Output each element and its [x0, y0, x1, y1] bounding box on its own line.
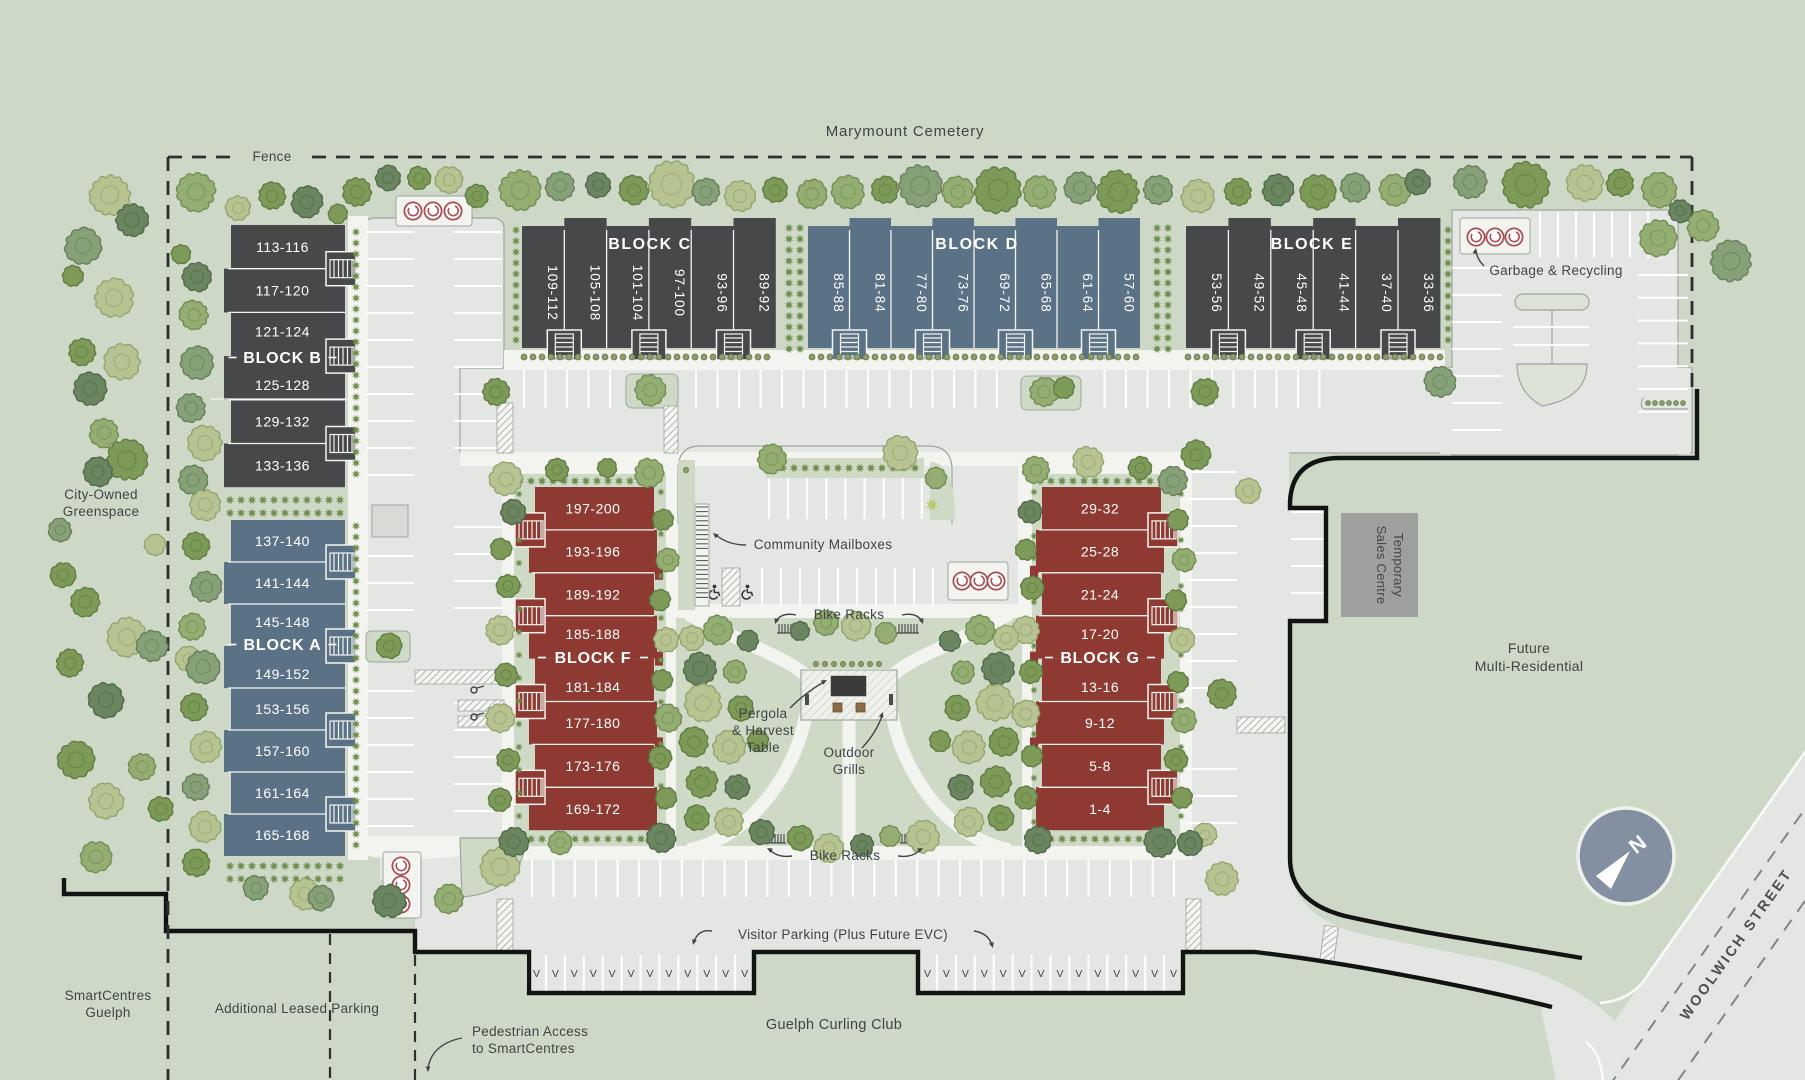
svg-text:Community Mailboxes: Community Mailboxes: [754, 537, 893, 552]
svg-text:141-144: 141-144: [255, 575, 310, 591]
svg-text:9-12: 9-12: [1085, 715, 1115, 731]
svg-text:Sales Centre: Sales Centre: [1374, 526, 1389, 605]
svg-text:V: V: [741, 968, 748, 980]
svg-text:Garbage & Recycling: Garbage & Recycling: [1489, 263, 1622, 278]
svg-text:V: V: [609, 968, 616, 980]
svg-text:V: V: [1170, 968, 1177, 980]
svg-text:101-104: 101-104: [630, 265, 645, 322]
svg-text:BLOCK A: BLOCK A: [244, 637, 322, 654]
svg-text:Fence: Fence: [252, 149, 291, 164]
svg-text:81-84: 81-84: [872, 273, 887, 313]
svg-text:133-136: 133-136: [255, 457, 310, 473]
svg-text:BLOCK F: BLOCK F: [555, 650, 632, 667]
svg-text:V: V: [646, 968, 653, 980]
svg-text:109-112: 109-112: [545, 265, 560, 321]
svg-text:185-188: 185-188: [566, 626, 621, 642]
svg-text:113-116: 113-116: [256, 239, 309, 255]
svg-text:53-56: 53-56: [1209, 273, 1224, 313]
svg-text:93-96: 93-96: [714, 273, 729, 313]
svg-text:189-192: 189-192: [566, 586, 621, 602]
svg-text:45-48: 45-48: [1294, 273, 1309, 313]
svg-text:Greenspace: Greenspace: [63, 504, 140, 519]
svg-text:5-8: 5-8: [1089, 758, 1111, 774]
svg-text:V: V: [533, 968, 540, 980]
svg-text:Multi-Residential: Multi-Residential: [1475, 658, 1584, 674]
svg-text:165-168: 165-168: [255, 827, 310, 843]
svg-text:V: V: [962, 968, 969, 980]
svg-text:25-28: 25-28: [1081, 543, 1119, 559]
svg-text:to SmartCentres: to SmartCentres: [472, 1041, 575, 1056]
svg-text:149-152: 149-152: [255, 666, 310, 682]
svg-text:V: V: [1056, 968, 1063, 980]
svg-text:85-88: 85-88: [831, 273, 846, 313]
svg-text:61-64: 61-64: [1080, 273, 1095, 313]
svg-text:BLOCK G: BLOCK G: [1060, 650, 1139, 667]
svg-text:Guelph: Guelph: [85, 1005, 130, 1020]
svg-text:177-180: 177-180: [566, 715, 621, 731]
svg-text:BLOCK B: BLOCK B: [243, 350, 321, 367]
svg-text:169-172: 169-172: [566, 801, 621, 817]
svg-text:V: V: [703, 968, 710, 980]
svg-text:Guelph Curling Club: Guelph Curling Club: [766, 1017, 902, 1033]
svg-text:161-164: 161-164: [255, 785, 310, 801]
svg-text:V: V: [1075, 968, 1082, 980]
svg-text:Grills: Grills: [833, 762, 866, 777]
svg-text:145-148: 145-148: [255, 614, 310, 630]
svg-text:197-200: 197-200: [566, 500, 621, 516]
svg-text:V: V: [1151, 968, 1158, 980]
svg-text:V: V: [684, 968, 691, 980]
svg-text:65-68: 65-68: [1038, 273, 1053, 313]
svg-text:Table: Table: [746, 740, 780, 755]
svg-text:89-92: 89-92: [757, 273, 772, 313]
svg-text:77-80: 77-80: [914, 273, 929, 313]
svg-text:V: V: [1038, 968, 1045, 980]
svg-text:137-140: 137-140: [255, 533, 310, 549]
svg-text:V: V: [665, 968, 672, 980]
svg-text:V: V: [1113, 968, 1120, 980]
svg-text:Marymount Cemetery: Marymount Cemetery: [826, 123, 985, 140]
svg-text:V: V: [924, 968, 931, 980]
svg-text:BLOCK E: BLOCK E: [1271, 236, 1354, 253]
svg-text:125-128: 125-128: [255, 377, 310, 393]
svg-text:97-100: 97-100: [672, 269, 687, 317]
svg-text:21-24: 21-24: [1081, 586, 1119, 602]
svg-text:173-176: 173-176: [566, 758, 621, 774]
svg-text:121-124: 121-124: [255, 323, 310, 339]
svg-text:Bike Racks: Bike Racks: [814, 607, 885, 622]
svg-text:1-4: 1-4: [1089, 801, 1111, 817]
svg-text:37-40: 37-40: [1379, 273, 1394, 313]
svg-text:V: V: [552, 968, 559, 980]
svg-text:Pergola: Pergola: [739, 706, 788, 721]
svg-text:33-36: 33-36: [1421, 273, 1436, 313]
svg-text:Bike Racks: Bike Racks: [810, 848, 881, 863]
svg-text:V: V: [628, 968, 635, 980]
svg-text:V: V: [1019, 968, 1026, 980]
svg-text:City-Owned: City-Owned: [64, 487, 138, 502]
svg-text:Future: Future: [1508, 640, 1550, 656]
svg-text:V: V: [722, 968, 729, 980]
svg-text:181-184: 181-184: [566, 679, 621, 695]
svg-text:SmartCentres: SmartCentres: [65, 988, 152, 1003]
svg-text:105-108: 105-108: [587, 265, 602, 322]
svg-text:Temporary: Temporary: [1391, 533, 1406, 597]
svg-text:17-20: 17-20: [1081, 626, 1119, 642]
svg-text:29-32: 29-32: [1081, 500, 1119, 516]
svg-text:Outdoor: Outdoor: [824, 745, 875, 760]
svg-text:V: V: [981, 968, 988, 980]
svg-text:57-60: 57-60: [1121, 273, 1136, 313]
svg-text:V: V: [943, 968, 950, 980]
svg-text:Visitor Parking (Plus Future E: Visitor Parking (Plus Future EVC): [738, 927, 948, 942]
svg-text:Additional Leased Parking: Additional Leased Parking: [215, 1001, 379, 1016]
svg-text:V: V: [1132, 968, 1139, 980]
svg-text:157-160: 157-160: [255, 743, 310, 759]
svg-text:V: V: [571, 968, 578, 980]
svg-text:129-132: 129-132: [255, 414, 310, 430]
svg-text:& Harvest: & Harvest: [732, 723, 794, 738]
svg-text:41-44: 41-44: [1336, 273, 1351, 313]
svg-text:BLOCK D: BLOCK D: [935, 236, 1018, 253]
svg-text:193-196: 193-196: [566, 543, 621, 559]
svg-text:73-76: 73-76: [955, 273, 970, 313]
svg-text:V: V: [1094, 968, 1101, 980]
svg-text:Pedestrian Access: Pedestrian Access: [472, 1024, 588, 1039]
svg-text:BLOCK C: BLOCK C: [608, 236, 691, 253]
svg-text:13-16: 13-16: [1081, 679, 1119, 695]
svg-text:49-52: 49-52: [1252, 273, 1267, 313]
svg-text:V: V: [1000, 968, 1007, 980]
svg-text:153-156: 153-156: [255, 701, 310, 717]
svg-text:V: V: [590, 968, 597, 980]
svg-text:117-120: 117-120: [256, 283, 310, 299]
svg-text:69-72: 69-72: [997, 273, 1012, 313]
